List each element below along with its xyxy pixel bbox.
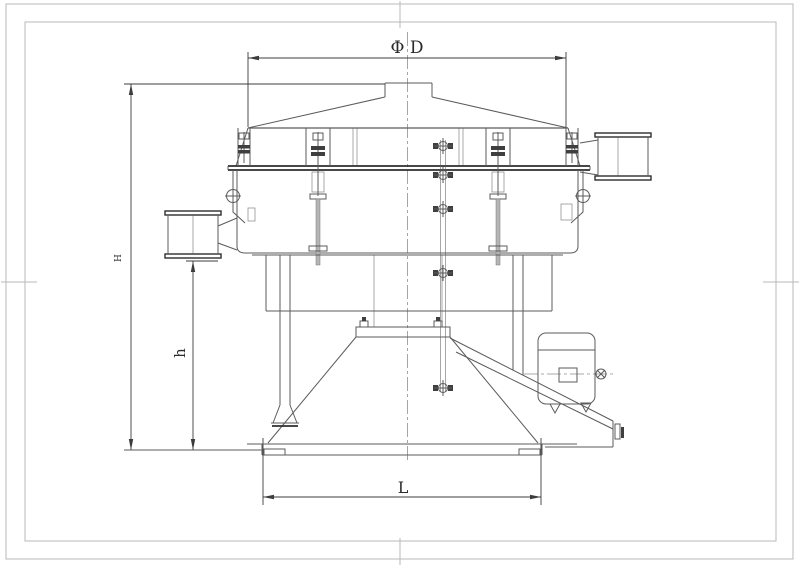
motor-bracket xyxy=(450,338,624,447)
arrow-left-icon xyxy=(248,56,259,60)
drum-plate-right xyxy=(561,204,572,220)
outlet-flange xyxy=(595,176,651,180)
diameter-label: Φ D xyxy=(391,38,424,58)
outlet-flange xyxy=(165,254,221,258)
motor-terminal-box xyxy=(559,368,577,382)
dimension-base-width: L xyxy=(263,438,541,505)
arrow-down-icon xyxy=(191,439,195,450)
outlet-flange xyxy=(595,133,651,137)
clamp-bolt-left xyxy=(306,128,330,265)
dimension-discharge-height: h xyxy=(124,261,262,450)
cone-flange xyxy=(356,317,450,337)
rod-bolt xyxy=(433,265,453,281)
base-foot-left xyxy=(264,449,285,455)
arrow-left-icon xyxy=(263,495,274,499)
machine-cover xyxy=(236,83,580,166)
arrow-right-icon xyxy=(555,56,566,60)
discharge-height-label: h xyxy=(171,348,189,358)
motor xyxy=(538,333,606,413)
leg-right xyxy=(513,255,523,375)
rod-bolt xyxy=(433,201,453,217)
base-width-label: L xyxy=(398,478,409,497)
bracket-foot xyxy=(615,424,620,439)
overall-height-label: H xyxy=(114,254,124,262)
clamp-flange-ring xyxy=(228,166,590,170)
outlet-flange xyxy=(165,211,221,215)
drawing-sheet: Φ D H h L xyxy=(0,0,800,566)
clamp-bolt-right xyxy=(486,128,510,265)
inner-border xyxy=(25,22,776,541)
base-plate xyxy=(247,444,577,455)
base-cone xyxy=(268,337,538,443)
base-foot-right xyxy=(519,449,540,455)
discharge-outlet-left xyxy=(165,211,237,258)
centerlines xyxy=(408,32,615,462)
discharge-outlet-right xyxy=(580,133,651,180)
rod-bolt xyxy=(433,138,453,154)
leg-left xyxy=(271,255,299,426)
center-tie-rod xyxy=(433,138,453,396)
arrow-up-icon xyxy=(129,84,133,95)
arrow-up-icon xyxy=(191,261,195,272)
rod-bolt xyxy=(433,380,453,396)
outer-border xyxy=(6,4,793,559)
vibrating-sifter-drawing: Φ D H h L xyxy=(0,0,800,566)
arrow-right-icon xyxy=(530,495,541,499)
arrow-down-icon xyxy=(129,439,133,450)
drum-plate-left xyxy=(248,208,255,221)
